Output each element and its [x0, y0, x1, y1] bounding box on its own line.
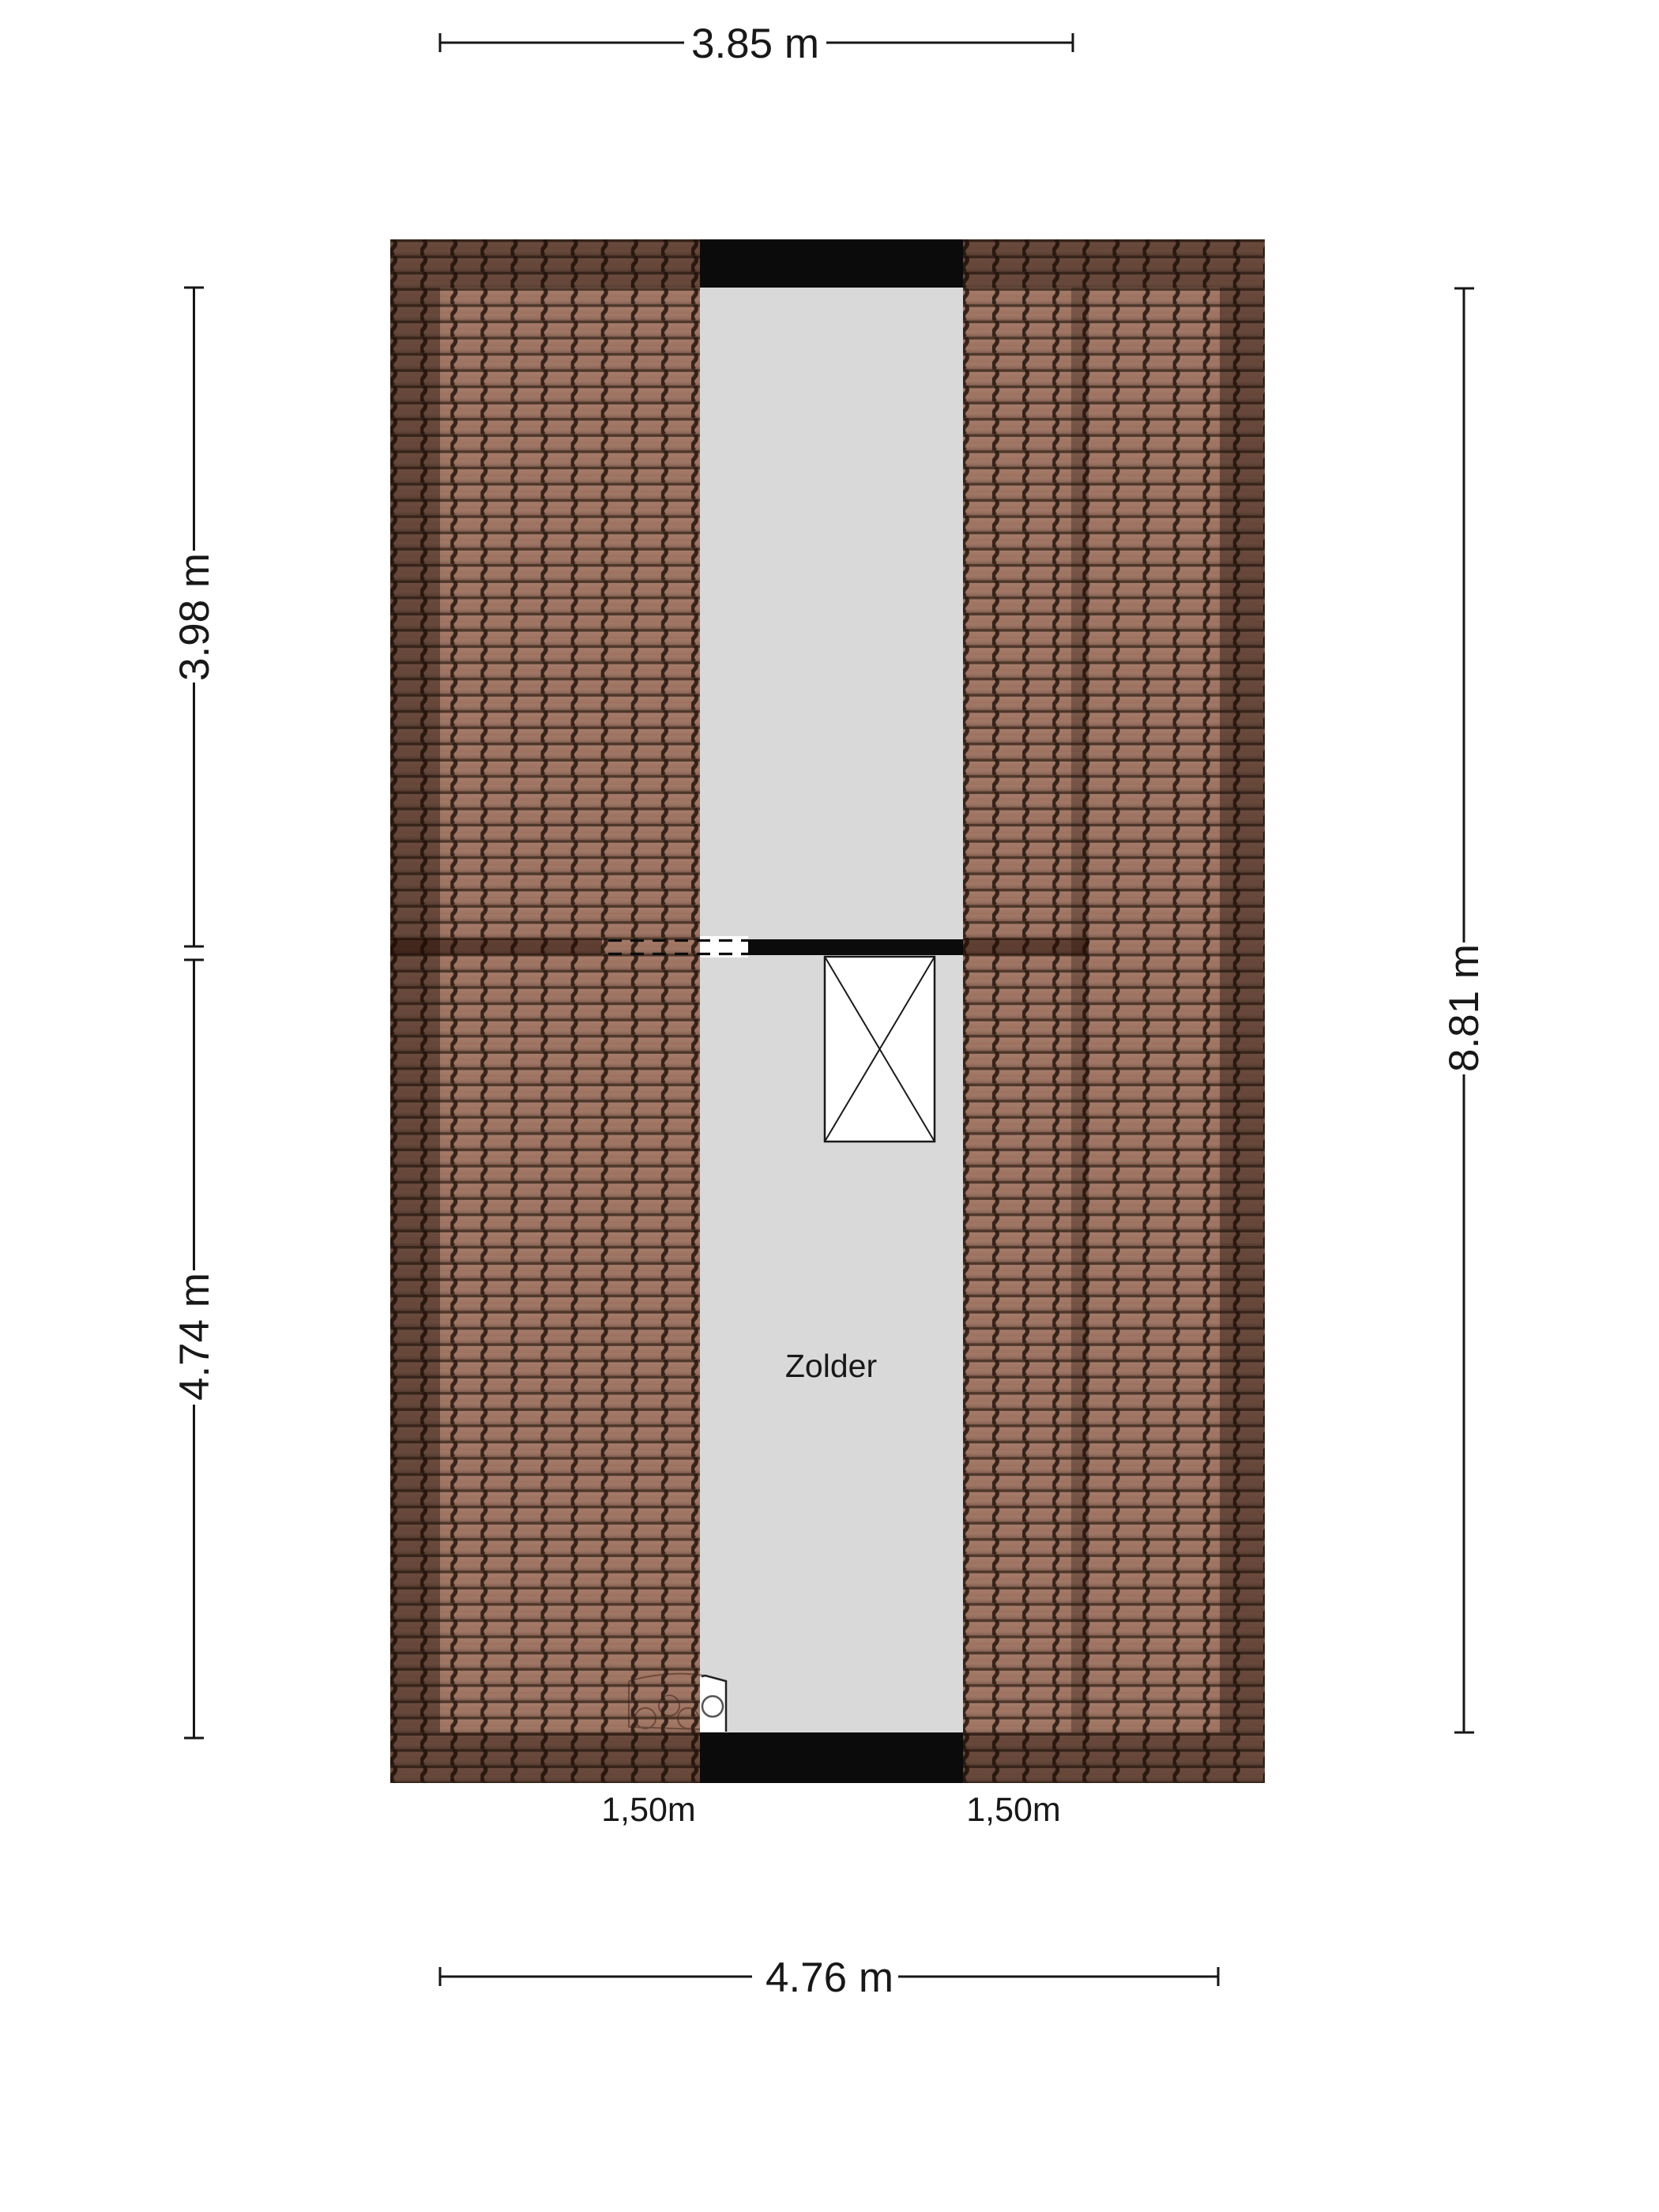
svg-text:4.74 m: 4.74 m — [171, 1273, 218, 1401]
svg-text:8.81 m: 8.81 m — [1441, 944, 1488, 1072]
svg-text:1,50m: 1,50m — [966, 1791, 1061, 1829]
svg-text:3.98 m: 3.98 m — [171, 553, 218, 681]
svg-text:4.76 m: 4.76 m — [766, 1954, 893, 2001]
svg-text:1,50m: 1,50m — [601, 1791, 696, 1829]
svg-text:Zolder: Zolder — [785, 1348, 877, 1384]
svg-text:3.85 m: 3.85 m — [691, 21, 819, 67]
